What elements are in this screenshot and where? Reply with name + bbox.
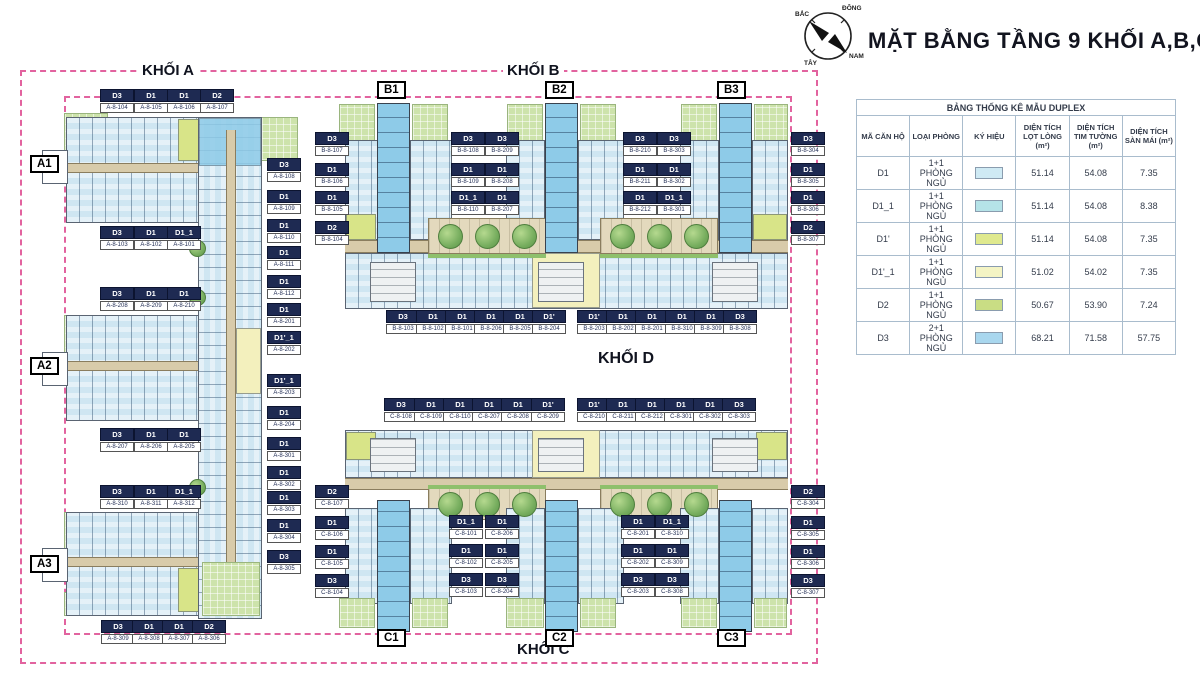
corridor	[66, 361, 206, 371]
building-units	[578, 508, 624, 604]
building-units	[345, 508, 378, 604]
unit-code: D1_1	[857, 190, 910, 223]
unit-code: D3	[857, 322, 910, 355]
unit-number-label: A-8-108	[267, 172, 301, 182]
unit-type-label: D3	[101, 620, 135, 633]
unit-number-label: B-8-107	[315, 146, 349, 156]
unit-number-label: A-8-106	[167, 103, 201, 113]
wall-area: 71.58	[1069, 322, 1122, 355]
unit-label: D3C-8-203	[621, 573, 655, 597]
unit-type-label: D1	[267, 437, 301, 450]
unit-number-label: B-8-305	[791, 177, 825, 187]
unit-label: D1'B-8-204	[532, 310, 566, 334]
tree-icon	[647, 224, 672, 249]
color-swatch-cell	[963, 256, 1016, 289]
unit-type-label: D1	[267, 246, 301, 259]
unit-type-label: D1_1	[167, 226, 201, 239]
unit-number-label: C-8-209	[531, 412, 565, 422]
unit-label: D1C-8-305	[791, 516, 825, 540]
unit-number-label: A-8-111	[267, 260, 301, 270]
unit-color-patch	[346, 214, 376, 240]
unit-number-label: A-8-305	[267, 564, 301, 574]
unit-code: D2	[857, 289, 910, 322]
unit-number-label: A-8-309	[101, 634, 135, 644]
unit-number-label: B-8-204	[532, 324, 566, 334]
unit-label: D1A-8-105	[134, 89, 168, 113]
unit-number-label: C-8-307	[791, 588, 825, 598]
unit-number-label: C-8-304	[791, 499, 825, 509]
unit-label: D3A-8-104	[100, 89, 134, 113]
unit-number-label: C-8-310	[655, 529, 689, 539]
unit-number-label: B-8-207	[485, 205, 519, 215]
unit-code: D1	[857, 157, 910, 190]
legend-row: D1'1+1 PHÒNG NGỦ51.1454.087.35	[857, 223, 1176, 256]
unit-label: D1A-8-304	[267, 519, 301, 543]
unit-code: D1'	[857, 223, 910, 256]
unit-number-label: C-8-103	[449, 587, 483, 597]
unit-type-label: D1	[134, 89, 168, 102]
unit-type-label: D1	[485, 191, 519, 204]
tower-label-b2: B2	[545, 81, 574, 99]
unit-label: D2C-8-107	[315, 485, 349, 509]
unit-type-label: D1	[315, 191, 349, 204]
unit-number-label: A-8-312	[167, 499, 201, 509]
unit-type-label: D3	[623, 132, 657, 145]
legend-row: D1'_11+1 PHÒNG NGỦ51.0254.027.35	[857, 256, 1176, 289]
room-type: 2+1 PHÒNG NGỦ	[910, 322, 963, 355]
legend-row: D1_11+1 PHÒNG NGỦ51.1454.088.38	[857, 190, 1176, 223]
color-swatch-cell	[963, 223, 1016, 256]
lobby-core	[538, 438, 584, 472]
unit-color-patch	[753, 214, 787, 240]
unit-number-label: A-8-208	[100, 301, 134, 311]
unit-number-label: B-8-106	[315, 177, 349, 187]
lawn-area	[506, 598, 544, 628]
unit-type-label: D2	[791, 221, 825, 234]
hedge	[428, 485, 546, 489]
unit-color-patch	[236, 328, 261, 394]
unit-type-label: D1	[267, 519, 301, 532]
unit-number-label: C-8-308	[655, 587, 689, 597]
unit-type-label: D1	[267, 190, 301, 203]
unit-type-label: D3	[791, 132, 825, 145]
unit-type-label: D1'_1	[267, 374, 301, 387]
unit-number-label: B-8-212	[623, 205, 657, 215]
unit-type-label: D2	[200, 89, 234, 102]
unit-label: D3A-8-207	[100, 428, 134, 452]
unit-type-label: D1	[267, 466, 301, 479]
unit-label: D1A-8-205	[167, 428, 201, 452]
unit-type-label: D2	[192, 620, 226, 633]
building-units	[752, 508, 788, 604]
unit-type-label: D1_1	[449, 515, 483, 528]
unit-label: D3C-8-204	[485, 573, 519, 597]
unit-label: D1A-8-109	[267, 190, 301, 214]
unit-label: D1A-8-106	[167, 89, 201, 113]
unit-type-label: D1	[485, 163, 519, 176]
unit-type-label: D1	[449, 544, 483, 557]
unit-label: D1_1C-8-101	[449, 515, 483, 539]
lobby-core	[712, 438, 758, 472]
unit-type-label: D1	[657, 163, 691, 176]
unit-label: D1_1B-8-301	[657, 191, 691, 215]
unit-number-label: A-8-308	[132, 634, 166, 644]
compass-north-label: BẮC	[795, 9, 809, 18]
unit-number-label: B-8-301	[657, 205, 691, 215]
unit-label: D1A-8-303	[267, 491, 301, 515]
unit-type-label: D1	[315, 516, 349, 529]
unit-label: D3C-8-308	[655, 573, 689, 597]
net-area: 51.02	[1016, 256, 1069, 289]
legend-title: BẢNG THỐNG KÊ MẪU DUPLEX	[857, 100, 1176, 116]
unit-number-label: A-8-307	[162, 634, 196, 644]
unit-label: D3B-8-210	[623, 132, 657, 156]
unit-type-label: D1	[655, 544, 689, 557]
unit-number-label: C-8-303	[722, 412, 756, 422]
unit-number-label: A-8-206	[134, 442, 168, 452]
unit-label: D1A-8-311	[134, 485, 168, 509]
unit-label: D3B-8-303	[657, 132, 691, 156]
unit-label: D1_1A-8-312	[167, 485, 201, 509]
unit-type-label: D2	[315, 485, 349, 498]
duplex-legend-table: BẢNG THỐNG KÊ MẪU DUPLEX MÃ CĂN HỘLOẠI P…	[856, 99, 1176, 355]
unit-type-label: D3	[100, 89, 134, 102]
unit-number-label: C-8-208	[501, 412, 535, 422]
unit-type-label: D3	[267, 550, 301, 563]
unit-type-label: D1	[162, 620, 196, 633]
unit-type-label: D3	[100, 287, 134, 300]
unit-label: D3C-8-307	[791, 574, 825, 598]
unit-number-label: A-8-103	[100, 240, 134, 250]
corridor	[226, 130, 236, 606]
unit-label: D2C-8-304	[791, 485, 825, 509]
unit-number-label: B-8-302	[657, 177, 691, 187]
unit-label: D1C-8-201	[621, 515, 655, 539]
unit-number-label: B-8-104	[315, 235, 349, 245]
unit-type-label: D1	[451, 163, 485, 176]
lawn-area	[580, 598, 616, 628]
unit-label: D1B-8-305	[791, 163, 825, 187]
unit-number-label: C-8-206	[485, 529, 519, 539]
unit-type-label: D3	[100, 428, 134, 441]
lobby-core	[538, 262, 584, 302]
unit-number-label: B-8-105	[315, 205, 349, 215]
unit-type-label: D1_1	[167, 485, 201, 498]
net-area: 51.14	[1016, 223, 1069, 256]
unit-type-label: D1	[791, 545, 825, 558]
unit-number-label: A-8-112	[267, 289, 301, 299]
unit-number-label: A-8-204	[267, 420, 301, 430]
tree-icon	[475, 492, 500, 517]
unit-label: D3B-8-308	[723, 310, 757, 334]
tree-icon	[684, 224, 709, 249]
lawn-area	[412, 598, 448, 628]
unit-number-label: C-8-106	[315, 530, 349, 540]
lawn-area	[754, 104, 788, 144]
block-title-khoi-b: KHỐI B	[503, 62, 564, 79]
unit-label: D3A-8-103	[100, 226, 134, 250]
unit-number-label: A-8-201	[267, 317, 301, 327]
unit-type-label: D3	[451, 132, 485, 145]
unit-label: D1A-8-210	[167, 287, 201, 311]
unit-label: D3C-8-103	[449, 573, 483, 597]
lobby-core	[370, 438, 416, 472]
unit-type-label: D1'	[532, 310, 566, 323]
unit-number-label: A-8-210	[167, 301, 201, 311]
floorplan-page: BẮC ĐÔNG TÂY NAM MẶT BẰNG TẦNG 9 KHỐI A,…	[0, 0, 1200, 688]
tower-label-a2: A2	[30, 357, 59, 375]
legend-column-header: KÝ HIỆU	[963, 116, 1016, 157]
unit-number-label: C-8-104	[315, 588, 349, 598]
unit-label: D3A-8-208	[100, 287, 134, 311]
roof-area: 8.38	[1122, 190, 1175, 223]
unit-type-label: D1	[267, 275, 301, 288]
unit-number-label: B-8-208	[485, 177, 519, 187]
unit-type-label: D3	[621, 573, 655, 586]
unit-label: D3B-8-304	[791, 132, 825, 156]
tree-icon	[438, 492, 463, 517]
tower-core	[719, 103, 752, 253]
unit-type-label: D3	[386, 310, 420, 323]
unit-label: D1_1B-8-110	[451, 191, 485, 215]
unit-number-label: A-8-205	[167, 442, 201, 452]
tower-label-b1: B1	[377, 81, 406, 99]
unit-type-label: D2	[315, 221, 349, 234]
corridor	[66, 557, 206, 567]
unit-label: D1A-8-110	[267, 219, 301, 243]
tree-icon	[647, 492, 672, 517]
legend-row: D11+1 PHÒNG NGỦ51.1454.087.35	[857, 157, 1176, 190]
hedge	[428, 254, 546, 258]
tree-icon	[684, 492, 709, 517]
unit-label: D1B-8-201	[635, 310, 669, 334]
unit-label: D1A-8-302	[267, 466, 301, 490]
tree-icon	[610, 492, 635, 517]
unit-type-label: D3	[655, 573, 689, 586]
unit-type-label: D1	[485, 515, 519, 528]
unit-label: D3A-8-305	[267, 550, 301, 574]
legend-column-header: DIỆN TÍCH LỌT LÒNG (m²)	[1016, 116, 1069, 157]
unit-number-label: B-8-201	[635, 324, 669, 334]
unit-number-label: A-8-310	[100, 499, 134, 509]
unit-color-patch	[756, 432, 787, 460]
unit-label: D1B-8-211	[623, 163, 657, 187]
unit-number-label: A-8-202	[267, 345, 301, 355]
unit-label: D1B-8-207	[485, 191, 519, 215]
unit-label: D1C-8-309	[655, 544, 689, 568]
unit-label: D1A-8-209	[134, 287, 168, 311]
wall-area: 53.90	[1069, 289, 1122, 322]
lawn-area	[412, 104, 448, 144]
unit-number-label: A-8-102	[134, 240, 168, 250]
unit-type-label: D1	[167, 428, 201, 441]
color-swatch-cell	[963, 322, 1016, 355]
unit-number-label: B-8-108	[451, 146, 485, 156]
unit-type-label: D3	[657, 132, 691, 145]
unit-type-label: D1	[134, 226, 168, 239]
legend-row: D21+1 PHÒNG NGỦ50.6753.907.24	[857, 289, 1176, 322]
unit-label: D3C-8-303	[722, 398, 756, 422]
unit-label: D1C-8-102	[449, 544, 483, 568]
unit-type-label: D1	[167, 89, 201, 102]
unit-label: D1A-8-112	[267, 275, 301, 299]
unit-label: D1'_1A-8-203	[267, 374, 301, 398]
unit-type-label: D1	[267, 303, 301, 316]
unit-label: D1_1C-8-310	[655, 515, 689, 539]
unit-type-label: D3	[384, 398, 418, 411]
net-area: 50.67	[1016, 289, 1069, 322]
unit-label: D2B-8-104	[315, 221, 349, 245]
unit-number-label: B-8-209	[485, 146, 519, 156]
color-swatch	[975, 167, 1003, 179]
tower-core	[377, 500, 410, 632]
tower-core	[545, 103, 578, 253]
unit-label: D3C-8-104	[315, 574, 349, 598]
unit-number-label: C-8-108	[384, 412, 418, 422]
wall-area: 54.08	[1069, 190, 1122, 223]
net-area: 51.14	[1016, 190, 1069, 223]
color-swatch-cell	[963, 157, 1016, 190]
unit-type-label: D1	[132, 620, 166, 633]
unit-number-label: B-8-109	[451, 177, 485, 187]
unit-number-label: A-8-105	[134, 103, 168, 113]
unit-type-label: D1	[167, 287, 201, 300]
tree-icon	[475, 224, 500, 249]
unit-number-label: A-8-203	[267, 388, 301, 398]
unit-type-label: D1	[267, 219, 301, 232]
unit-number-label: C-8-202	[621, 558, 655, 568]
roof-area: 7.35	[1122, 223, 1175, 256]
wall-area: 54.08	[1069, 157, 1122, 190]
unit-number-label: B-8-110	[451, 205, 485, 215]
unit-type-label: D1'	[531, 398, 565, 411]
unit-type-label: D3	[100, 485, 134, 498]
unit-type-label: D1'_1	[267, 331, 301, 344]
unit-number-label: C-8-102	[449, 558, 483, 568]
roof-area: 57.75	[1122, 322, 1175, 355]
color-swatch	[975, 200, 1003, 212]
unit-number-label: A-8-207	[100, 442, 134, 452]
tree-icon	[512, 492, 537, 517]
unit-type-label: D1	[623, 163, 657, 176]
unit-label: D1C-8-306	[791, 545, 825, 569]
unit-type-label: D3	[267, 158, 301, 171]
unit-number-label: A-8-101	[167, 240, 201, 250]
unit-label: D1A-8-111	[267, 246, 301, 270]
color-swatch-cell	[963, 190, 1016, 223]
room-type: 1+1 PHÒNG NGỦ	[910, 157, 963, 190]
building-units	[410, 508, 452, 604]
unit-label: D1A-8-308	[132, 620, 166, 644]
tower-label-c3: C3	[717, 629, 746, 647]
unit-label: D1B-8-302	[657, 163, 691, 187]
hedge	[600, 254, 718, 258]
unit-number-label: A-8-301	[267, 451, 301, 461]
room-type: 1+1 PHÒNG NGỦ	[910, 289, 963, 322]
unit-label: D2B-8-307	[791, 221, 825, 245]
compass-south-label: NAM	[849, 53, 864, 60]
unit-type-label: D1_1	[657, 191, 691, 204]
lobby-core	[370, 262, 416, 302]
unit-number-label: A-8-306	[192, 634, 226, 644]
unit-label: D1_1A-8-101	[167, 226, 201, 250]
unit-number-label: C-8-105	[315, 559, 349, 569]
tower-core	[719, 500, 752, 632]
roof-area: 7.35	[1122, 256, 1175, 289]
unit-type-label: D1_1	[451, 191, 485, 204]
unit-label: D3B-8-107	[315, 132, 349, 156]
unit-number-label: B-8-308	[723, 324, 757, 334]
unit-label: D1C-8-202	[621, 544, 655, 568]
page-title: MẶT BẰNG TẦNG 9 KHỐI A,B,C	[868, 28, 1200, 54]
unit-number-label: B-8-103	[386, 324, 420, 334]
lawn-area	[202, 562, 260, 616]
unit-label: D1'C-8-209	[531, 398, 565, 422]
unit-number-label: C-8-306	[791, 559, 825, 569]
unit-type-label: D1	[315, 163, 349, 176]
unit-label: D1B-8-106	[315, 163, 349, 187]
color-swatch	[975, 332, 1003, 344]
unit-label: D1A-8-102	[134, 226, 168, 250]
unit-label: D1A-8-204	[267, 406, 301, 430]
unit-type-label: D1	[635, 310, 669, 323]
unit-type-label: D1	[267, 406, 301, 419]
legend-header-row: MÃ CĂN HỘLOẠI PHÒNGKÝ HIỆUDIỆN TÍCH LỌT …	[857, 116, 1176, 157]
unit-number-label: A-8-110	[267, 233, 301, 243]
color-swatch	[975, 299, 1003, 311]
unit-label: D1C-8-105	[315, 545, 349, 569]
unit-number-label: B-8-303	[657, 146, 691, 156]
unit-label: D3A-8-310	[100, 485, 134, 509]
tower-label-a1: A1	[30, 155, 59, 173]
unit-label: D1B-8-306	[791, 191, 825, 215]
lobby-core	[712, 262, 758, 302]
tree-icon	[610, 224, 635, 249]
lawn-area	[339, 598, 375, 628]
unit-code: D1'_1	[857, 256, 910, 289]
unit-type-label: D2	[791, 485, 825, 498]
unit-type-label: D3	[723, 310, 757, 323]
unit-number-label: A-8-311	[134, 499, 168, 509]
wall-area: 54.08	[1069, 223, 1122, 256]
unit-label: D3B-8-108	[451, 132, 485, 156]
unit-type-label: D1	[791, 516, 825, 529]
unit-label: D1B-8-105	[315, 191, 349, 215]
unit-number-label: B-8-307	[791, 235, 825, 245]
unit-number-label: A-8-303	[267, 505, 301, 515]
compass-west-label: TÂY	[804, 58, 818, 67]
tower-core	[545, 500, 578, 632]
unit-label: D1C-8-205	[485, 544, 519, 568]
unit-label: D3B-8-209	[485, 132, 519, 156]
tower-label-c1: C1	[377, 629, 406, 647]
corridor	[66, 163, 206, 173]
unit-number-label: C-8-205	[485, 558, 519, 568]
color-swatch	[975, 266, 1003, 278]
tower-label-b3: B3	[717, 81, 746, 99]
unit-label: D1B-8-212	[623, 191, 657, 215]
unit-number-label: B-8-306	[791, 205, 825, 215]
unit-number-label: C-8-107	[315, 499, 349, 509]
unit-label: D3C-8-108	[384, 398, 418, 422]
unit-number-label: B-8-211	[623, 177, 657, 187]
wall-area: 54.02	[1069, 256, 1122, 289]
unit-type-label: D3	[449, 573, 483, 586]
unit-number-label: C-8-203	[621, 587, 655, 597]
unit-type-label: D1	[623, 191, 657, 204]
unit-label: D1A-8-206	[134, 428, 168, 452]
legend-column-header: DIỆN TÍCH SÀN MÁI (m²)	[1122, 116, 1175, 157]
